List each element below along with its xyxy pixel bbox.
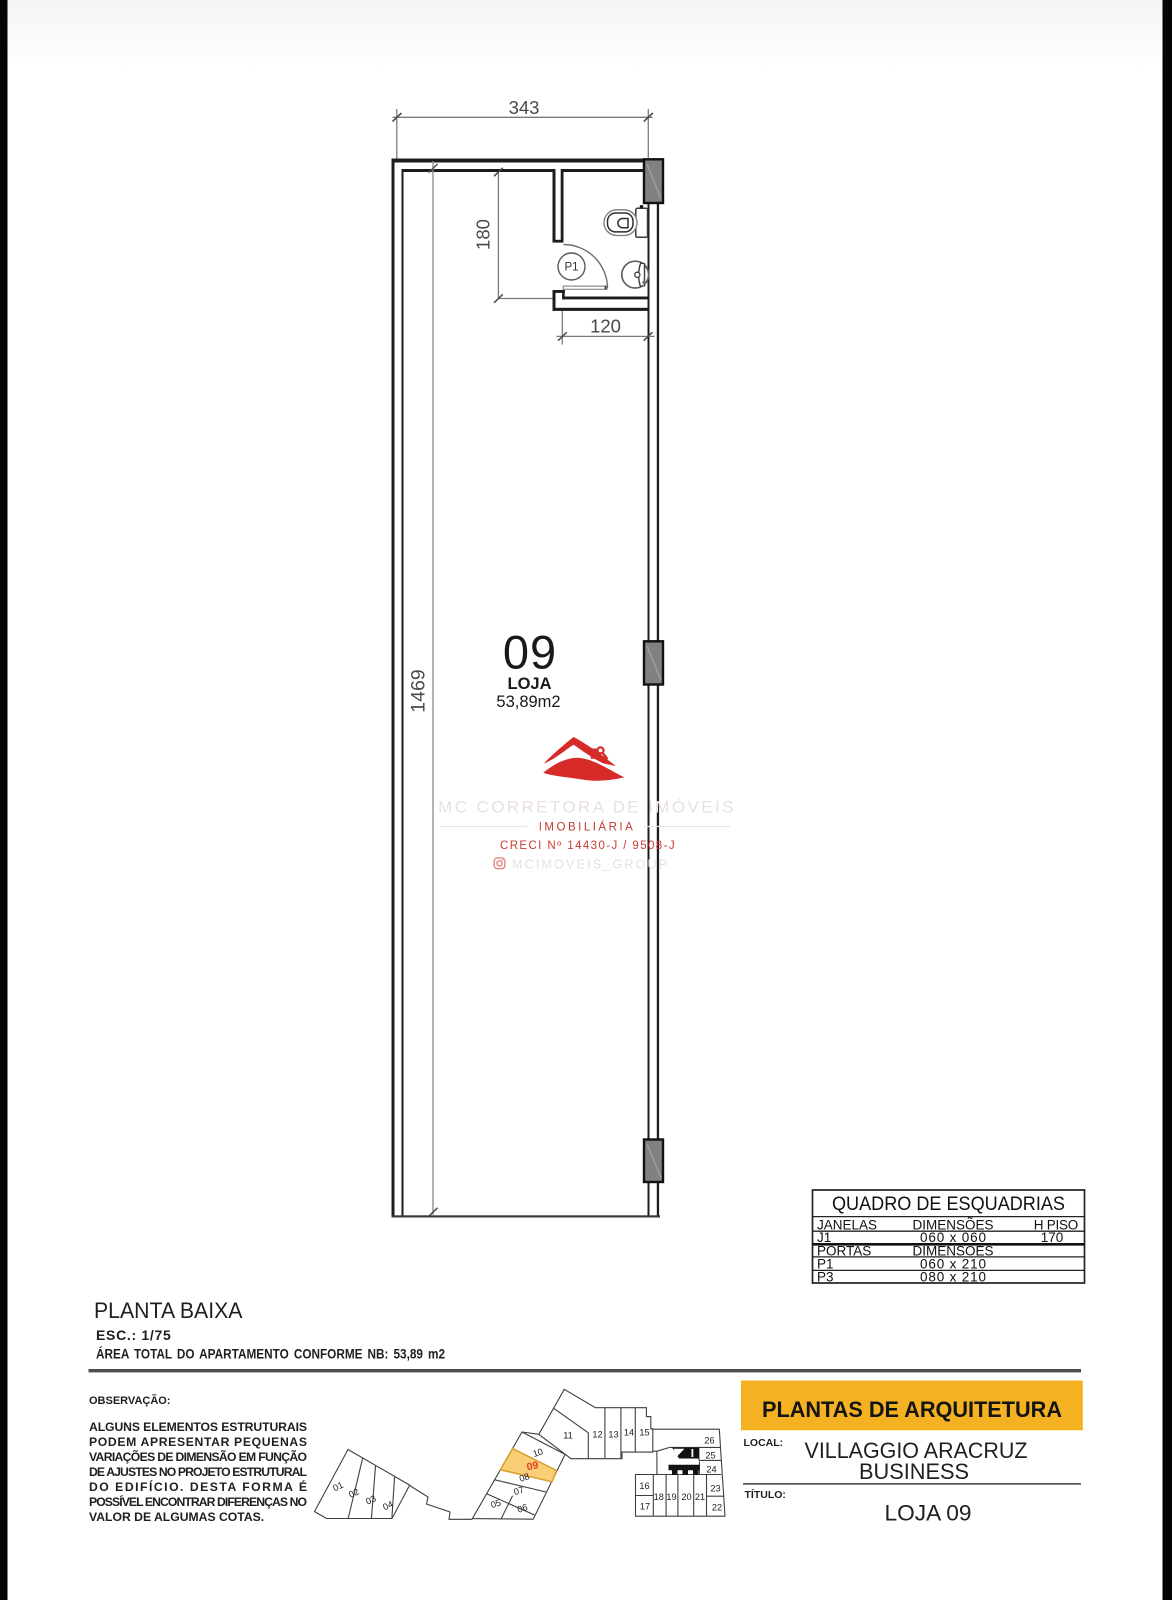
- svg-text:DO EDIFÍCIO. DESTA FORMA É: DO EDIFÍCIO. DESTA FORMA É: [89, 1479, 307, 1494]
- svg-text:ALGUNS ELEMENTOS ESTRUTURA: ALGUNS ELEMENTOS ESTRUTURAIS: [89, 1420, 307, 1434]
- svg-text:09: 09: [503, 626, 557, 679]
- svg-text:18: 18: [654, 1492, 664, 1502]
- svg-text:P1: P1: [564, 262, 578, 274]
- svg-text:BUSINESS: BUSINESS: [859, 1459, 969, 1484]
- svg-text:PODEM APRESENTAR PEQUENAS: PODEM APRESENTAR PEQUENAS: [89, 1435, 307, 1449]
- svg-text:02: 02: [347, 1486, 361, 1499]
- svg-text:21: 21: [695, 1492, 705, 1502]
- svg-text:DE AJUSTES NO PROJETO ESTR: DE AJUSTES NO PROJETO ESTRUTURAL: [89, 1465, 308, 1479]
- svg-text:LOCAL:: LOCAL:: [744, 1437, 784, 1449]
- svg-text:QUADRO DE ESQUADRIAS: QUADRO DE ESQUADRIAS: [832, 1193, 1065, 1215]
- svg-text:180: 180: [473, 219, 494, 250]
- svg-text:15: 15: [639, 1428, 649, 1438]
- svg-text:19: 19: [666, 1492, 676, 1502]
- svg-text:PLANTA BAIXA: PLANTA BAIXA: [94, 1298, 243, 1323]
- svg-text:343: 343: [509, 97, 540, 118]
- svg-text:10: 10: [531, 1446, 544, 1459]
- svg-text:TÍTULO:: TÍTULO:: [745, 1488, 786, 1501]
- svg-text:06: 06: [516, 1502, 529, 1515]
- svg-text:VARIAÇÕES DE DIMENSÃO EM: VARIAÇÕES DE DIMENSÃO EM FUNÇÃO: [89, 1449, 307, 1464]
- svg-text:MC CORRETORA DE IMÓVEIS: MC CORRETORA DE IMÓVEIS: [438, 798, 736, 817]
- svg-text:16: 16: [639, 1481, 649, 1491]
- svg-text:120: 120: [590, 316, 621, 337]
- svg-text:20: 20: [681, 1492, 691, 1502]
- svg-text:01: 01: [331, 1480, 345, 1493]
- svg-text:170: 170: [1041, 1230, 1064, 1245]
- svg-text:23: 23: [710, 1484, 720, 1494]
- svg-text:MCIMOVEIS_GROUP: MCIMOVEIS_GROUP: [512, 857, 669, 871]
- svg-text:LOJA 09: LOJA 09: [885, 1501, 972, 1526]
- svg-text:LOJA: LOJA: [507, 675, 551, 693]
- svg-text:17: 17: [640, 1502, 650, 1512]
- svg-text:ESC.: 1/75: ESC.: 1/75: [96, 1327, 171, 1343]
- svg-text:VALOR DE ALGUMAS COTAS.: VALOR DE ALGUMAS COTAS.: [89, 1510, 264, 1524]
- svg-text:13: 13: [608, 1430, 618, 1440]
- svg-text:PLANTAS DE ARQUITETURA: PLANTAS DE ARQUITETURA: [762, 1397, 1062, 1422]
- svg-text:53,89m2: 53,89m2: [496, 693, 560, 711]
- svg-text:IMOBILIÁRIA: IMOBILIÁRIA: [539, 821, 636, 834]
- svg-text:ÁREA TOTAL DO APARTAMENTO CONF: ÁREA TOTAL DO APARTAMENTO CONFORME NB: 5…: [96, 1347, 445, 1362]
- svg-text:12: 12: [592, 1430, 602, 1440]
- svg-text:1469: 1469: [408, 669, 430, 712]
- svg-text:24: 24: [706, 1464, 716, 1474]
- svg-text:26: 26: [704, 1436, 714, 1446]
- svg-text:OBSERVAÇÃO:: OBSERVAÇÃO:: [89, 1394, 171, 1407]
- svg-text:22: 22: [712, 1503, 722, 1513]
- svg-text:11: 11: [563, 1431, 573, 1441]
- svg-text:14: 14: [624, 1428, 634, 1438]
- svg-text:CRECI Nº 14430-J / 9508-J: CRECI Nº 14430-J / 9508-J: [500, 840, 676, 852]
- svg-text:25: 25: [705, 1451, 715, 1461]
- svg-text:03: 03: [364, 1493, 378, 1506]
- svg-text:P3: P3: [817, 1269, 834, 1284]
- svg-text:POSSÍVEL ENCONTRAR DIFERENÇA: POSSÍVEL ENCONTRAR DIFERENÇAS NO: [89, 1494, 307, 1509]
- svg-text:080 x 210: 080 x 210: [920, 1269, 986, 1284]
